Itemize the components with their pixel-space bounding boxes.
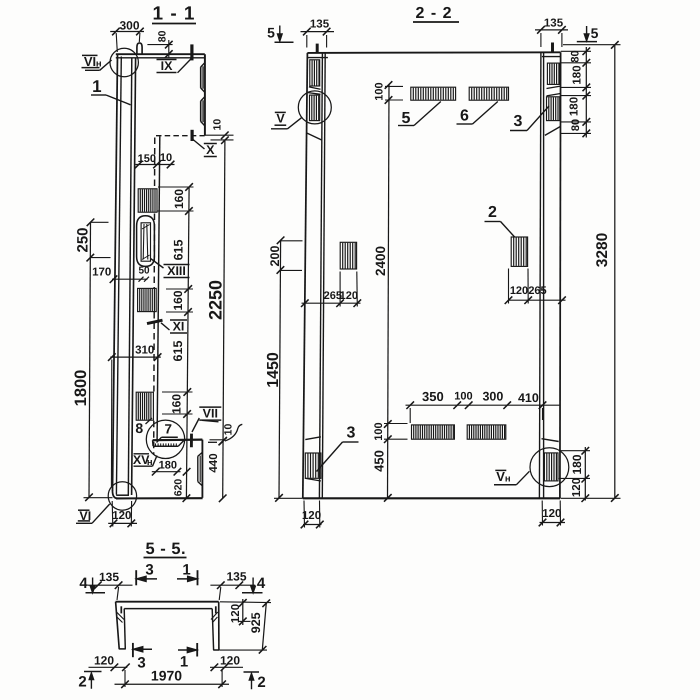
svg-text:160: 160 (172, 189, 186, 209)
svg-text:180: 180 (572, 65, 584, 84)
svg-text:6: 6 (460, 108, 469, 125)
svg-text:1: 1 (182, 562, 190, 579)
svg-text:300: 300 (482, 390, 503, 404)
svg-text:120: 120 (510, 285, 528, 297)
svg-text:VII: VII (203, 407, 218, 421)
svg-text:135: 135 (310, 18, 330, 30)
svg-text:3: 3 (145, 562, 153, 579)
svg-text:120: 120 (230, 604, 242, 623)
svg-text:160: 160 (169, 394, 183, 414)
svg-text:3: 3 (137, 655, 145, 672)
svg-text:250: 250 (75, 227, 92, 252)
svg-text:10: 10 (211, 119, 223, 131)
svg-text:80: 80 (570, 119, 582, 131)
svg-text:120: 120 (542, 508, 561, 520)
svg-text:3: 3 (347, 425, 356, 442)
svg-text:160: 160 (171, 290, 185, 310)
svg-text:1 - 1: 1 - 1 (152, 4, 195, 25)
svg-text:н: н (505, 474, 511, 485)
svg-text:170: 170 (92, 267, 111, 279)
svg-text:200: 200 (268, 246, 282, 267)
svg-text:150: 150 (138, 153, 156, 165)
svg-text:10: 10 (222, 424, 234, 436)
svg-text:2: 2 (78, 674, 86, 691)
svg-text:180: 180 (159, 460, 177, 472)
svg-text:5: 5 (402, 110, 411, 127)
svg-text:410: 410 (518, 391, 539, 405)
svg-text:615: 615 (171, 341, 185, 362)
svg-text:180: 180 (569, 97, 581, 116)
svg-text:440: 440 (208, 453, 220, 472)
svg-text:XIII: XIII (167, 264, 186, 278)
svg-text:135: 135 (99, 570, 119, 584)
svg-text:180: 180 (570, 454, 584, 474)
svg-text:80: 80 (570, 50, 582, 62)
svg-text:8: 8 (135, 420, 143, 436)
svg-text:310: 310 (135, 344, 154, 356)
svg-text:1450: 1450 (265, 352, 282, 388)
svg-text:4: 4 (257, 575, 266, 592)
svg-text:350: 350 (422, 389, 444, 404)
svg-text:5: 5 (267, 25, 275, 41)
svg-text:100: 100 (373, 422, 385, 440)
svg-text:2250: 2250 (206, 280, 226, 320)
svg-text:1800: 1800 (72, 370, 90, 407)
svg-text:135: 135 (226, 570, 246, 584)
svg-text:VI: VI (84, 54, 96, 69)
svg-text:120: 120 (220, 654, 240, 668)
svg-text:450: 450 (371, 450, 386, 472)
svg-text:1: 1 (92, 77, 101, 96)
svg-text:120: 120 (571, 478, 583, 497)
svg-text:265: 265 (528, 285, 546, 297)
svg-text:3: 3 (514, 113, 523, 130)
svg-text:120: 120 (94, 654, 114, 668)
svg-text:4: 4 (79, 575, 88, 592)
svg-text:V: V (276, 112, 285, 126)
svg-text:120: 120 (340, 290, 358, 302)
svg-text:XI: XI (173, 320, 185, 334)
svg-text:620: 620 (172, 479, 184, 497)
svg-text:100: 100 (454, 390, 472, 402)
svg-text:2: 2 (488, 204, 497, 221)
svg-text:5 - 5.: 5 - 5. (145, 540, 186, 558)
svg-text:7: 7 (165, 421, 173, 436)
svg-text:3280: 3280 (594, 233, 611, 267)
svg-text:2400: 2400 (373, 246, 388, 276)
svg-text:1970: 1970 (151, 668, 182, 684)
svg-text:10: 10 (160, 152, 172, 164)
svg-text:50: 50 (138, 266, 150, 277)
svg-text:925: 925 (249, 612, 263, 633)
svg-text:615: 615 (171, 240, 185, 261)
svg-text:X: X (206, 143, 215, 157)
svg-text:300: 300 (119, 19, 139, 33)
svg-text:80: 80 (156, 30, 168, 42)
svg-text:V: V (496, 469, 505, 484)
svg-text:100: 100 (374, 82, 386, 100)
svg-text:IX: IX (161, 59, 173, 73)
svg-text:135: 135 (544, 17, 564, 29)
svg-text:2 - 2: 2 - 2 (415, 5, 452, 22)
svg-text:120: 120 (112, 510, 131, 522)
svg-text:2: 2 (257, 674, 265, 691)
svg-text:5: 5 (591, 25, 599, 41)
